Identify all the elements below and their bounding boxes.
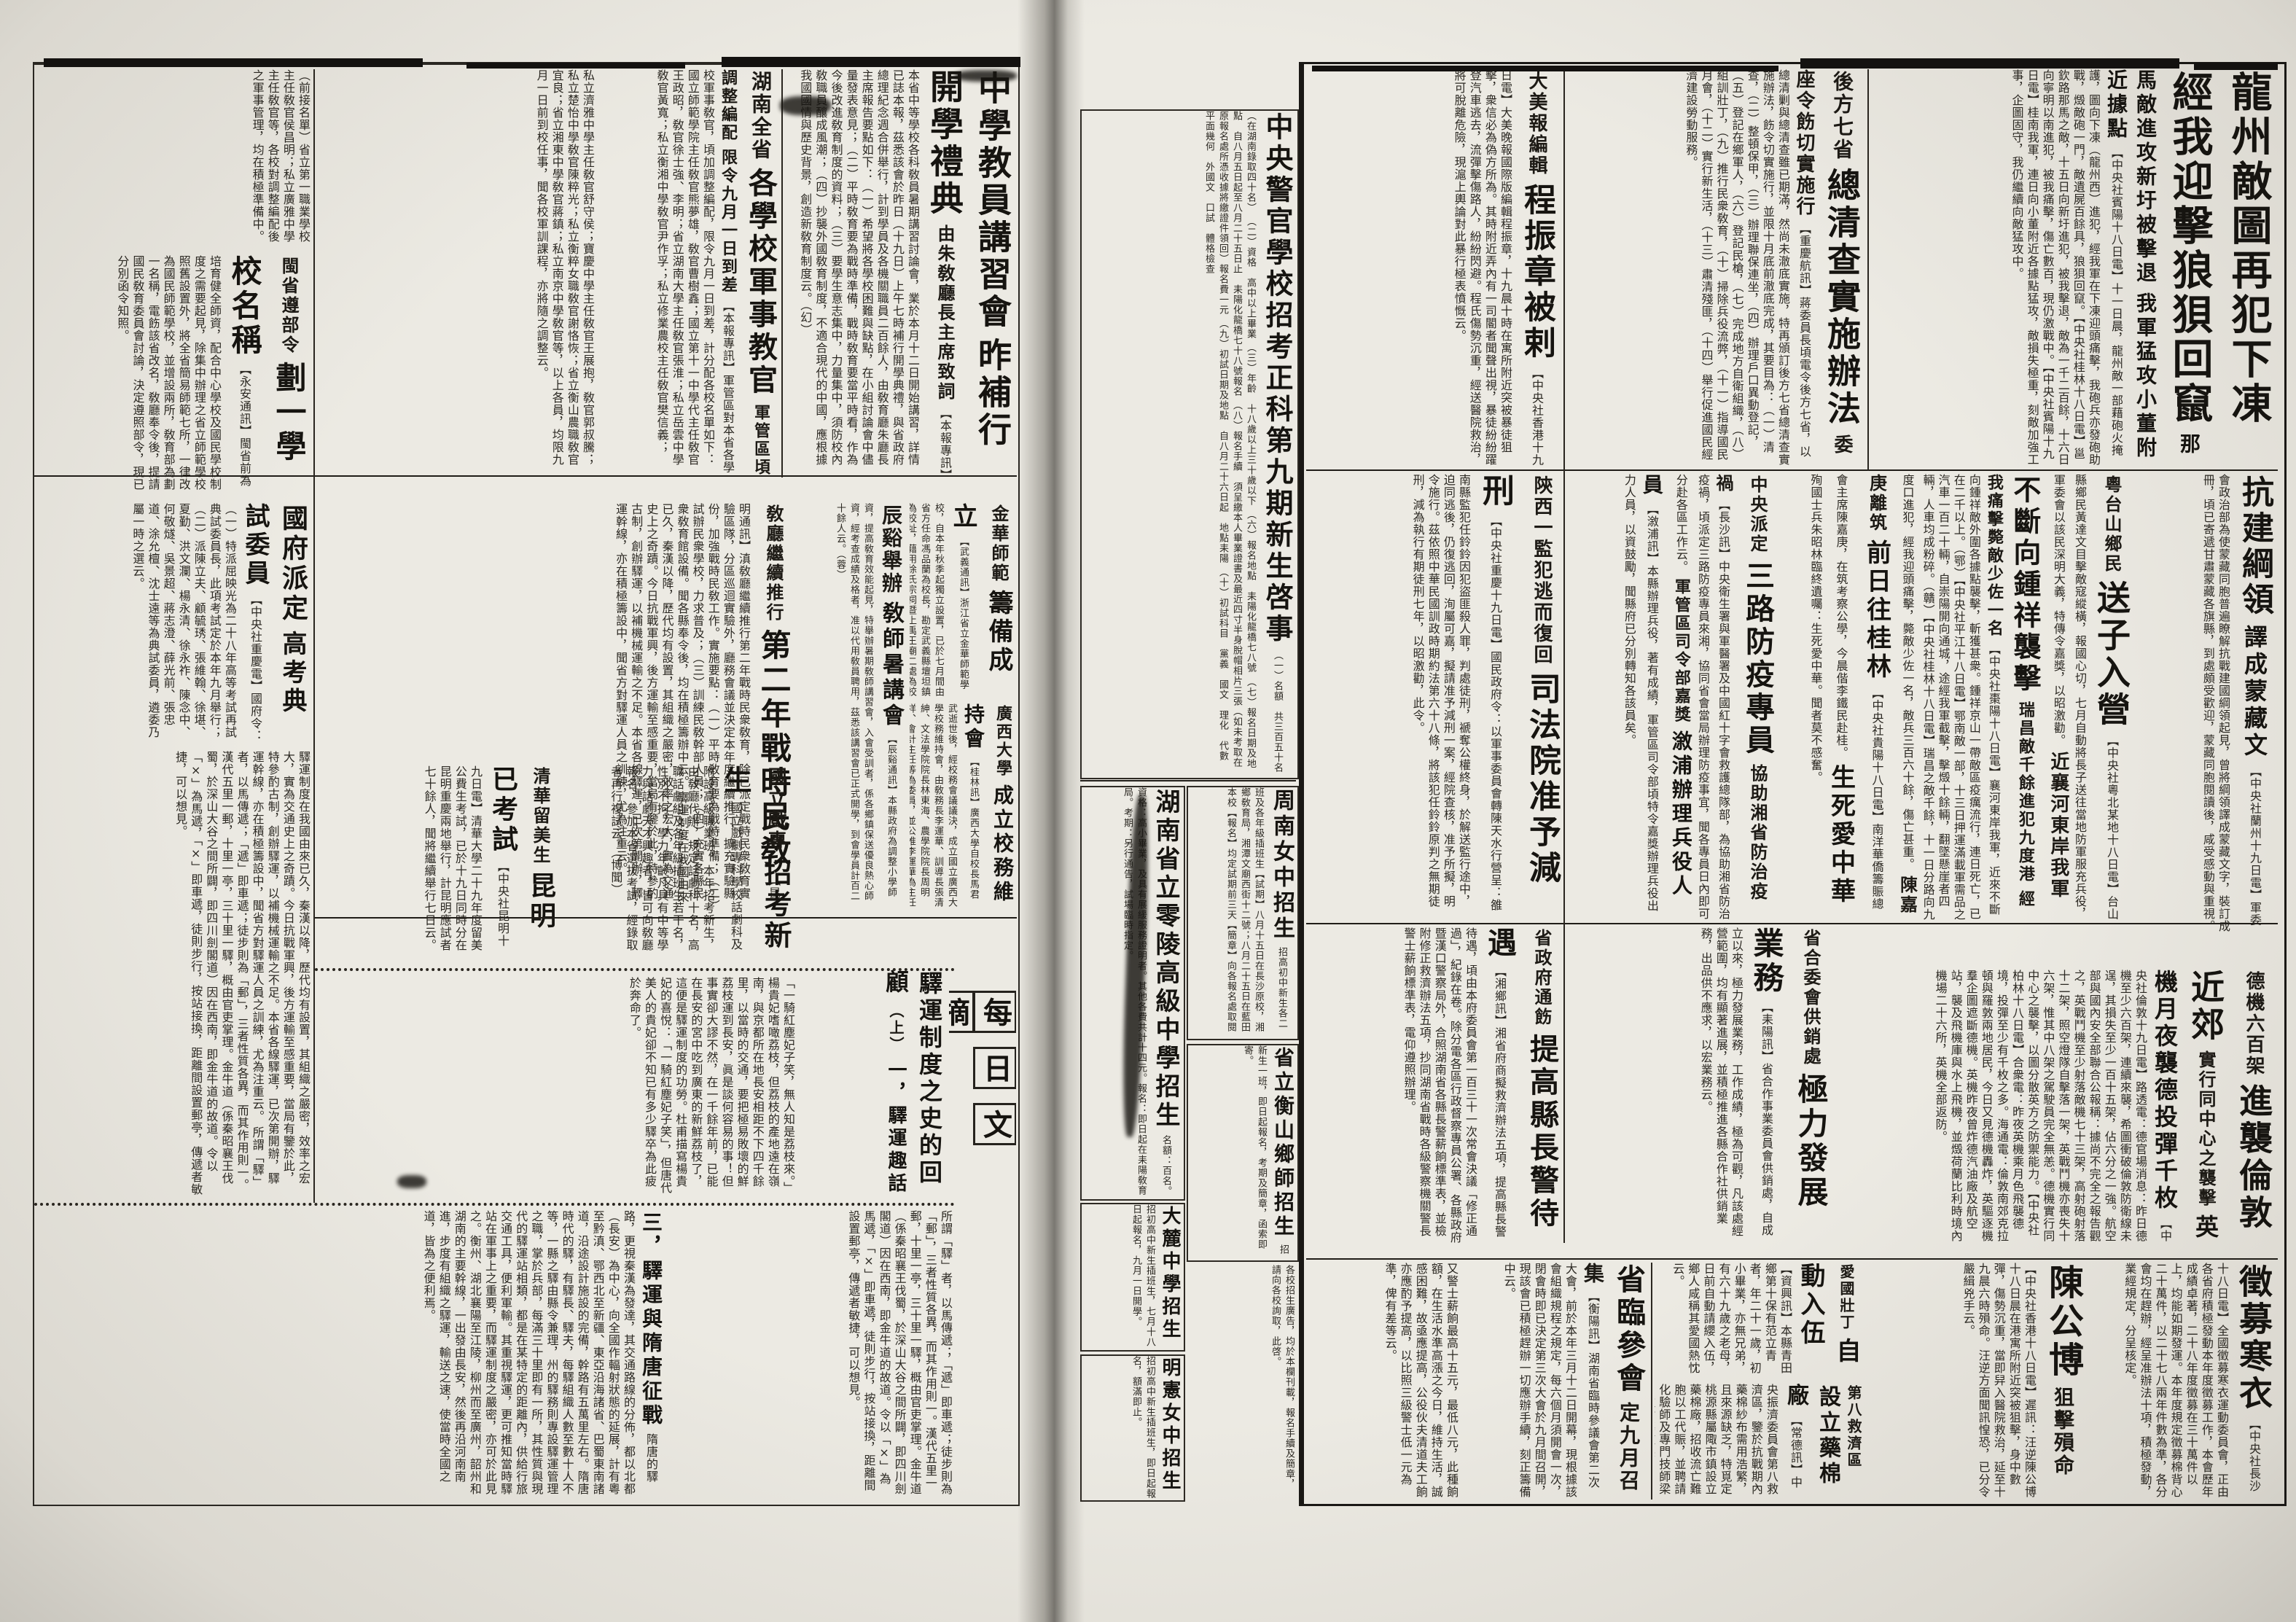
- ad-zhounan-school: 周南女中招生 招高初中新生各二班及各年級插班生【試期】八月十五日在長沙原校，湘鄉…: [1187, 786, 1299, 1040]
- article-junjiao-namelist: 私立濟雅中學主任敎官舒守侯；寶慶中學主任敎官王展抱，敎官郭叔騰；私立楚怡中學敎官…: [315, 69, 596, 477]
- article-london-raid: 德機六百架 進襲倫敦近郊 實行同中心之襲擊 英機月夜襲德投彈千枚 【中央社倫敦十…: [1837, 970, 2278, 1243]
- article-jiangxihui: 中學教員講習會 昨補行開學禮典 由朱敎廳長主席致詞 【本報專訊】本省中等學校各科…: [784, 69, 1017, 477]
- article-tigao-continued: 又警士薪餉最高十五元，最低八元，此種餉額，在生活水準高漲之今日，維持生活，誠感困…: [1306, 1263, 1459, 1500]
- body-text: 私立濟雅中學主任敎官舒守侯；寶慶中學主任敎官王展抱，敎官郭叔騰；私立楚怡中學敎官…: [535, 69, 595, 466]
- digest-title-block: 驛運制度之史的回顧 （上） 一，驛運趣話: [802, 970, 946, 1199]
- kicker: 湖南全省: [744, 69, 777, 163]
- rule: [315, 917, 1017, 919]
- scan-artifact-bar: [2194, 63, 2278, 70]
- digest-part: （上）: [883, 1002, 909, 1055]
- body-text: 驛運制度在我國由來已久，秦漢以降，歷代均有設置，其組織之嚴密，效率之宏大，實為交…: [251, 751, 311, 1185]
- article-shenglincan: 省臨參會 定九月召集 【衡陽訊】湖南省臨時參議會第二次大會，前於本年三月十二日開…: [1464, 1263, 1649, 1500]
- article-zhengmu: 徵募寒衣 【中央社長沙十八日電】全國徵募寒衣運動委員會，正由各省府積極發動本年度…: [2093, 1263, 2278, 1500]
- headline: 龍州敵圖再犯下凍: [2219, 69, 2278, 428]
- article-qinghua: 清華留美生 昆明已考試 【中央社昆明十九日電】清華大學二十九年度留美公費生考試，…: [315, 765, 559, 959]
- subheadline: 限令九月一日到差: [714, 147, 741, 296]
- ad-dalu-school: 大麓中學招生 招初高中新生插班生，七月十八日起報名，九月一日開學。: [1080, 1203, 1185, 1352]
- rule-dotted: [34, 1203, 955, 1206]
- article-gongxiao: 省合委會供銷處 極力發展業務 【耒陽訊】省合作事業委員會供銷處，自成立以來，極力…: [1567, 927, 1833, 1241]
- scan-artifact-bar: [44, 58, 423, 67]
- body-text: 隋唐的驛路，更視秦漢為發達，其交通路線的分佈，都以北都（長安）為中心，向全國作輻…: [422, 1210, 658, 1495]
- ad-title: 湖南省立零陵高級中學招生: [1145, 787, 1185, 1131]
- headline: 生死愛中華: [1820, 763, 1861, 908]
- body-text: 所謂「驛」者，以馬傳遞；「遞」即車遞；徒步則為「郵」，三者性質各異，而其作用則一…: [846, 1210, 953, 1495]
- scan-artifact-bar: [722, 57, 1020, 67]
- body-text: 殉國士兵朱昭林臨終遺囑：生死愛中華。聞者莫不感奮。: [1808, 474, 1822, 784]
- scan-artifact-bar: [466, 63, 685, 69]
- ad-police-academy: 中央警官學校招考正科第九期新生啓事 （一）名額 共三百五十名（在湖南錄取四十名）…: [1080, 109, 1299, 779]
- article-war-roundup: 粵台山鄉民 送子入營 【中央社粵北某地十八日電】台山縣鄉民黃達文目擊敵寇縱橫，報…: [1782, 474, 2136, 922]
- body-text: 【湘鄉訊】湘省府商擬救濟辦法五項，提高縣長警待遇，頃由本府委員會第一百三十一次常…: [1402, 927, 1507, 1244]
- body-text: 又警士薪餉最高十五元，最低八元，此種餉額，在生活水準高漲之今日，維持生活，誠感困…: [1383, 1263, 1459, 1498]
- digest-box-char: 摘: [949, 991, 975, 1033]
- ad-item: （九）初試日期及地點 自八月二十六日起 地點耒陽: [1217, 319, 1228, 564]
- rule: [34, 475, 1017, 477]
- kicker: 辰谿舉辦: [875, 503, 907, 596]
- article-aiguo: 愛國壯丁 自動入伍 【資興訊】本縣青田鄉第十保有范立青者，年二十一歲，初小畢業，…: [1655, 1263, 1864, 1378]
- digest-box-char: 每: [973, 991, 1016, 1033]
- body-text: 「一騎紅塵妃子笑，無人知是荔枝來。」楊貴妃嗜噉荔枝，但荔枝的產地遠在嶺南，與京都…: [628, 977, 795, 1194]
- body-text: 【中央社重慶十九日電】國民政府令：以軍事委員會轉陳天水行營呈：雒南縣監犯任鈴鈴因…: [1411, 474, 1502, 911]
- ad-body: 招初高中新生插班生，七月十八日起報名，九月一日開學。: [1131, 1204, 1155, 1347]
- ad-item: （三）年齡 十八歲以上三十歲以下: [1245, 343, 1256, 506]
- ad-mingxian-school: 明憲女中招生 招初高中新生插班生，即日起報名，額滿即止。: [1080, 1354, 1185, 1502]
- headline: 總清查實施辦法: [1816, 166, 1866, 429]
- article-minbu: 閩省遵部令 劃一學校名稱 【永安通訊】閩省前為培育健全師資，配合中心學校及國民學…: [34, 255, 311, 496]
- kicker: 省合委會供銷處: [1796, 927, 1825, 1068]
- digest-box-char: 日: [973, 1047, 1016, 1089]
- digest-body-3: 三，驛運與隋唐征戰 隋唐的驛路，更視秦漢為發達，其交通路線的分佈，都以北都（長安…: [34, 1210, 665, 1496]
- column-rule: [313, 69, 315, 1203]
- article-guoxi: 國立戲專 招考新生 國立戲劇專科學校話劇科及附設高級職業班，本年招考新生，由敎廳…: [563, 765, 796, 959]
- article-jinhua: 金華師範 籌備成立 【武義通訊】浙江省立金華師範學校，自本年秋季起獨立設置，已於…: [910, 503, 1017, 698]
- kicker: 清華留美生: [526, 765, 555, 867]
- kicker: 敎廳繼續推行: [759, 503, 788, 624]
- kicker: 愛國壯丁: [1833, 1263, 1859, 1333]
- rule: [1306, 469, 2278, 471]
- column-rule: [1651, 1263, 1652, 1500]
- scan-artifact-bar: [1800, 58, 2179, 69]
- headline: 徵募寒衣: [2228, 1263, 2278, 1414]
- ad-body: 各校招生廣告，均於本欄刊載，報名手續及簡章，請向各校詢取，此啓。: [1270, 1265, 1295, 1489]
- rule: [1306, 923, 2278, 924]
- digest-section-3: 三，驛運與隋唐征戰: [633, 1210, 665, 1430]
- digest-body-1: 「一騎紅塵妃子笑，無人知是荔枝來。」楊貴妃嗜噉荔枝，但荔枝的產地遠在嶺南，與京都…: [315, 977, 796, 1196]
- kicker: 粵台山鄉民: [2097, 474, 2126, 575]
- body-text: 【資興訊】本縣青田鄉第十保有范立青者，年二十一歲，初小畢業，亦無兄弟，有六十九歲…: [1671, 1263, 1792, 1374]
- ad-body: 招初高中新生插班生，即日起報名，額滿即止。: [1131, 1356, 1155, 1499]
- headline: 送子入營: [2086, 579, 2136, 730]
- article-chengzhenzhang: 大美報編輯 程振章被剌 【中央社香港十九日電】大美晚報國際版編輯程振章，十九晨十…: [1306, 69, 1560, 467]
- ad-title: 省立衡山鄉師招生: [1265, 1045, 1299, 1241]
- subheadline: 由朱敎廳長主席致詞: [930, 223, 959, 403]
- kicker: 國府派定: [272, 503, 311, 625]
- rule-dotted: [315, 968, 955, 971]
- article-longzhou: 龍州敵圖再犯下凍 經我迎擊狼狽回竄 那馬敵進攻新圩被擊退 我軍猛攻小董附近據點 …: [1870, 69, 2278, 470]
- scan-artifact-bar: [1312, 66, 1778, 71]
- body-text: （前接名單）省立第一職業學校主任敎官侯昌明；私立廣雅中學主任敎官等，各校對調整編…: [251, 69, 311, 243]
- digest-masthead: 每 日 文 摘: [949, 986, 1016, 1204]
- headline: 不斷向鍾祥襲擊: [2003, 474, 2047, 696]
- body-text: 【中央社倫敦十九日電】路透電：德官場消息：昨日德機至少六百架，連續來襲，希圖衝破…: [1934, 970, 2172, 1242]
- article-guangxi: 廣西大學 成立校務維持會 【桂林訊】廣西大學自校長馬君武逝世後，經校務會議議決，…: [910, 703, 1017, 908]
- scan-artifact-ink-blob: [955, 70, 1017, 82]
- body-text: 【漵浦訊】本縣辦理兵役，著有成績，軍管區司令部頃特令嘉獎辦理兵役出力人員，以資鼓…: [1623, 474, 1659, 912]
- newspaper-scan: 龍州敵圖再犯下凍 經我迎擊狼狽回竄 那馬敵進攻新圩被擊退 我軍猛攻小董附近據點 …: [0, 0, 2296, 1622]
- digest-body-2: 所謂「驛」者，以馬傳遞；「遞」即車遞；徒步則為「郵」，三者性質各異，而其作用則一…: [671, 1210, 953, 1496]
- article-fangyi: 中央派定 三路防疫專員 協助湘省防治疫禍 【長沙訊】中央衛生署與軍醫署及中國紅十…: [1567, 474, 1778, 922]
- rule: [1080, 780, 1296, 781]
- kicker: 德機六百架: [2238, 970, 2269, 1078]
- subheadline: 譯成蒙藏文: [2235, 623, 2274, 761]
- ad-strip-note: 各校招生廣告，均於本欄刊載，報名手續及簡章，請向各校詢取，此啓。: [1187, 1265, 1296, 1498]
- kicker: 軍管區司令部嘉獎: [1668, 577, 1695, 725]
- ad-title: 中央警官學校招考正科第九期新生啓事: [1255, 111, 1299, 647]
- article-junjiao: 湖南全省 各學校軍事教官 軍管區頃調整編配 限令九月一日到差 【本報專訊】軍管區…: [599, 69, 781, 477]
- article-gaokao: 國府派定 高考典試委員 【中央社重慶電】國府令：（一）特派屈映光為二十八年高等考…: [34, 503, 311, 744]
- kicker: 大美報編輯: [1521, 69, 1552, 178]
- body-text: 【衡陽訊】湖南省臨時參議會第二次大會，前於本年三月十二日開幕，現根據該會組織規程…: [1502, 1263, 1600, 1498]
- fold-crease: [1018, 0, 1085, 1622]
- ad-item: （六）報名地點 耒陽化龍橋七八號: [1245, 510, 1256, 673]
- article-sifa: 陝西一監犯逃而復回 司法院准予減刑 【中央社重慶十九日電】國民政府令：以軍事委員…: [1306, 474, 1565, 919]
- headline: 抗建綱領: [2230, 474, 2278, 620]
- kicker: 後方七省: [1826, 69, 1859, 163]
- subheadline: 狙擊殞命: [2047, 1385, 2080, 1478]
- ad-title: 明憲女中招生: [1153, 1356, 1185, 1494]
- ad-item: （二）資格 高中以上畢業: [1245, 217, 1256, 339]
- headline: 三路防疫專員: [1735, 559, 1778, 759]
- column-rule: [781, 69, 783, 477]
- kicker: 廣西大學: [989, 703, 1016, 779]
- subheadline: 實行同中心之襲擊: [2191, 1049, 2220, 1209]
- kicker: 省政府通飭: [1527, 927, 1556, 1029]
- article-diba: 第八救濟區 設立藥棉廠 【常德訊】中央振濟委員會第八救濟區，鑒於抗戰期內藥棉紗布…: [1655, 1384, 1864, 1500]
- article-chengongbo: 陳公博 狙擊殞命 【中央社香港十八日電】遲訊：汪逆陳公博十八日晨在港寓所附近突被…: [1870, 1263, 2088, 1500]
- column-rule: [1867, 69, 1869, 470]
- headline: 陳公博: [2037, 1263, 2088, 1381]
- scan-artifact-ink-blob: [397, 1175, 426, 1188]
- headline: 經我迎擊狼狽回竄: [2160, 69, 2219, 428]
- scan-artifact-ink-blob: [780, 96, 831, 115]
- headline: 中學教員講習會: [967, 69, 1017, 332]
- ad-hengshan-school: 省立衡山鄉師招生 招新生一班，即日起報名，考期及簡章，函索即寄。: [1187, 1044, 1299, 1262]
- rule: [1306, 1258, 2278, 1260]
- column-misc-left: 驛運制度在我國由來已久，秦漢以降，歷代均有設置，其組織之嚴密，效率之宏大，實為交…: [34, 751, 311, 1196]
- headline: 設立藥棉廠: [1777, 1384, 1846, 1487]
- column-rule: [1563, 69, 1565, 1243]
- article-chenxi: 辰谿舉辦 敎師暑講會 【辰谿通訊】本縣政府為調整小學師資，提高敎育效能起見，特舉…: [799, 503, 907, 908]
- kicker: 金華師範: [984, 503, 1013, 585]
- body-text: 【中央社香港十八日電】遲訊：汪逆陳公博十八日晨在港寓所附近突被狙擊，身中數彈，傷…: [1961, 1263, 2037, 1498]
- ad-title: 周南女中招生: [1263, 787, 1299, 943]
- headline: 敎師暑講會: [872, 600, 907, 730]
- digest-section-1: 一，驛運趣話: [879, 1058, 913, 1197]
- kicker: 中央派定: [1743, 474, 1772, 555]
- headline: 各學校軍事教官: [738, 166, 781, 399]
- headline: 前日往桂林: [1856, 538, 1897, 683]
- headline: 省臨參會: [1606, 1263, 1649, 1397]
- article-tigao: 省政府通飭 提高縣長警待遇 【湘鄉訊】湘省府商擬救濟辦法五項，提高縣長警待遇，頃…: [1306, 927, 1563, 1244]
- ad-title: 大麓中學招生: [1153, 1204, 1185, 1343]
- kicker: 近襄河東岸我軍: [2043, 750, 2074, 901]
- article-kangjian: 抗建綱領 譯成蒙藏文 【中央社蘭州十九日電】軍委會政治部為使蒙藏同胞普遍瞭解抗戰…: [2139, 474, 2278, 933]
- kicker: 國立戲專: [760, 765, 791, 853]
- digest-box-char: 文: [973, 1103, 1016, 1145]
- kicker: 陝西一監犯逃而復回: [1526, 474, 1557, 667]
- article-junjiao-namelist-2: （前接名單）省立第一職業學校主任敎官侯昌明；私立廣雅中學主任敎官等，各校對調整編…: [34, 69, 311, 248]
- article-qingcha: 後方七省 總清查實施辦法 委座令飭切實施行 【重慶航訊】蔣委員長頃電令後方七省，…: [1563, 69, 1866, 467]
- subheadline: 瑞昌敵千餘進犯九度港: [2012, 700, 2039, 885]
- headline: 程振章被剌: [1512, 182, 1560, 363]
- kicker: 閩省遵部令: [274, 255, 303, 356]
